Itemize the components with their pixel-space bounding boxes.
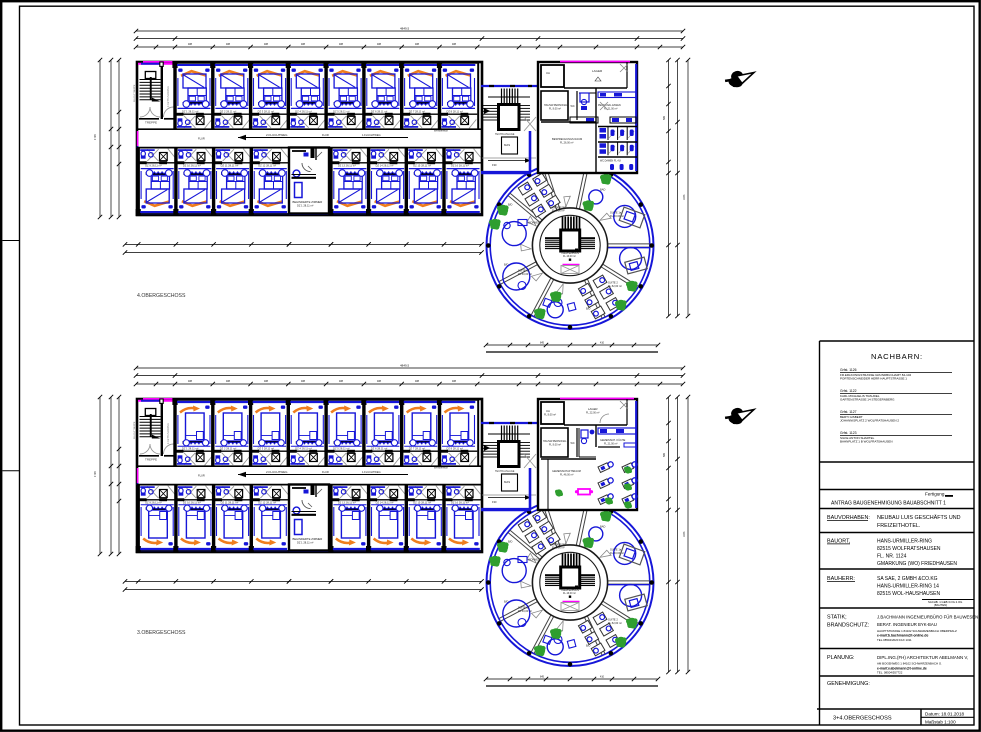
- svg-text:DZ 8 28,11 m²: DZ 8 28,11 m²: [447, 446, 464, 450]
- svg-text:4849.5: 4849.5: [400, 27, 410, 31]
- svg-text:UA: UA: [546, 71, 550, 75]
- svg-text:3.OBERGESCHOSS: 3.OBERGESCHOSS: [137, 630, 186, 636]
- svg-text:FL.8,00 m²: FL.8,00 m²: [552, 209, 565, 213]
- svg-text:488: 488: [264, 43, 269, 46]
- svg-text:DZ 1 28,11 m²: DZ 1 28,11 m²: [182, 446, 199, 450]
- svg-text:FLUCHTTREPPE: FLUCHTTREPPE: [134, 84, 136, 102]
- svg-text:FL.16,00 m²: FL.16,00 m²: [563, 255, 576, 258]
- svg-text:488: 488: [415, 43, 420, 46]
- svg-text:BAD: BAD: [600, 525, 605, 529]
- svg-text:FLUR: FLUR: [198, 137, 205, 141]
- svg-text:SUITE 1a: SUITE 1a: [610, 211, 622, 215]
- svg-text:845: 845: [540, 676, 545, 679]
- svg-text:BAD: BAD: [600, 188, 605, 192]
- svg-text:82515 WOL-HAUSHAUSEN: 82515 WOL-HAUSHAUSEN: [877, 591, 940, 597]
- svg-text:DZ 12 28,11 m²: DZ 12 28,11 m²: [258, 501, 276, 505]
- svg-text:NACHBARN:: NACHBARN:: [871, 352, 923, 361]
- svg-text:WOHNEN: WOHNEN: [528, 558, 540, 562]
- svg-text:488: 488: [377, 43, 382, 46]
- svg-text:DZ 15 28,11 m²: DZ 15 28,11 m²: [413, 501, 431, 505]
- svg-text:1735: 1735: [93, 134, 97, 140]
- svg-text:F30: F30: [492, 500, 497, 504]
- svg-text:HANS-URMILLER-RING: HANS-URMILLER-RING: [877, 539, 932, 545]
- svg-text:FL.52,00 m²: FL.52,00 m²: [608, 284, 622, 288]
- svg-text:82515 WOLFRATSHAUSEN: 82515 WOLFRATSHAUSEN: [877, 546, 941, 552]
- svg-text:845: 845: [540, 342, 545, 345]
- svg-text:Grfst. 1127: Grfst. 1127: [840, 410, 857, 414]
- svg-text:488: 488: [301, 43, 306, 46]
- svg-text:FREIZEITHOTEL.: FREIZEITHOTEL.: [877, 523, 920, 529]
- svg-text:DZ 7 28,11 m²: DZ 7 28,11 m²: [409, 109, 426, 113]
- svg-text:1735: 1735: [93, 471, 97, 477]
- svg-text:488: 488: [226, 380, 231, 383]
- svg-text:4.OBERGESCHOSS: 4.OBERGESCHOSS: [137, 293, 186, 299]
- svg-text:(BAUTEN): (BAUTEN): [934, 603, 947, 607]
- svg-text:B/D: B/D: [508, 203, 512, 207]
- svg-text:UA: UA: [546, 409, 550, 413]
- svg-text:AM BOGENWEG 1 84102 SCHWARZENB: AM BOGENWEG 1 84102 SCHWARZENBACH O.: [877, 662, 942, 666]
- svg-text:DIPL.ING.(FH) ARCHITEKTUR ABEL: DIPL.ING.(FH) ARCHITEKTUR ABELMANN V,: [877, 655, 968, 660]
- svg-text:BEHINDERTE ZIMMER: BEHINDERTE ZIMMER: [293, 537, 323, 541]
- svg-text:488: 488: [301, 380, 306, 383]
- svg-text:DZ 1 28,11 m²: DZ 1 28,11 m²: [182, 109, 199, 113]
- svg-text:FL.22,00 m²: FL.22,00 m²: [586, 412, 600, 415]
- svg-text:DZ 4 28,11 m²: DZ 4 28,11 m²: [295, 109, 312, 113]
- svg-text:DZ 13 28,11 m²: DZ 13 28,11 m²: [338, 501, 356, 505]
- svg-text:1673: 1673: [683, 194, 686, 200]
- svg-text:3+4.OBERGESCHOSS: 3+4.OBERGESCHOSS: [833, 716, 892, 722]
- svg-text:FLUR: FLUR: [322, 470, 329, 474]
- svg-text:2.RETTUNGSWEG: 2.RETTUNGSWEG: [167, 86, 170, 107]
- svg-text:TECHN.ANLAGE: TECHN.ANLAGE: [495, 470, 515, 473]
- svg-text:DZ 6 28,11 m²: DZ 6 28,11 m²: [371, 109, 388, 113]
- svg-text:1673: 1673: [683, 531, 686, 537]
- svg-text:e-mail:b.bachmann@t-online.de: e-mail:b.bachmann@t-online.de: [877, 634, 928, 638]
- svg-text:SUITE 1a: SUITE 1a: [610, 548, 622, 552]
- svg-text:FL.46,00 m²: FL.46,00 m²: [560, 474, 574, 477]
- svg-text:ANTRAG BAUGENEHMIGUNG BAUABSCH: ANTRAG BAUGENEHMIGUNG BAUABSCHNITT 1: [831, 501, 946, 507]
- svg-text:WC: WC: [571, 442, 575, 445]
- svg-text:WC: WC: [571, 105, 575, 108]
- svg-text:DZ 2 28,11 m²: DZ 2 28,11 m²: [220, 109, 237, 113]
- svg-text:GARTENSTRASSE 14 STEGERNBERG: GARTENSTRASSE 14 STEGERNBERG: [840, 398, 895, 402]
- svg-text:WC DAMEN FL.4,8: WC DAMEN FL.4,8: [600, 160, 621, 163]
- svg-text:585: 585: [663, 452, 666, 457]
- svg-text:Datum: 18.01.2018: Datum: 18.01.2018: [925, 712, 965, 717]
- svg-text:488: 488: [264, 380, 269, 383]
- svg-text:488: 488: [452, 380, 457, 383]
- svg-text:B/D: B/D: [504, 600, 508, 604]
- svg-text:DZ 13 28,11 m²: DZ 13 28,11 m²: [338, 164, 356, 168]
- svg-text:FL.50,00 m²: FL.50,00 m²: [610, 214, 624, 218]
- svg-text:Fertigung: Fertigung: [925, 492, 945, 497]
- svg-text:DZ 7 28,11 m²: DZ 7 28,11 m²: [409, 446, 426, 450]
- svg-text:WOHNEN: WOHNEN: [528, 221, 540, 225]
- svg-text:DZ 8 28,11 m²: DZ 8 28,11 m²: [447, 109, 464, 113]
- svg-text:BESPRECHUNGS RAUM: BESPRECHUNGS RAUM: [552, 137, 582, 141]
- svg-text:SUITE 1b: SUITE 1b: [518, 269, 530, 273]
- svg-text:DZ 14 28,11 m²: DZ 14 28,11 m²: [376, 164, 394, 168]
- svg-text:TECHN.ANLAGE: TECHN.ANLAGE: [495, 133, 515, 136]
- svg-text:2.RETTUNGSWEG: 2.RETTUNGSWEG: [167, 423, 170, 444]
- svg-text:410: 410: [600, 342, 605, 345]
- svg-text:DZ 2 28,11 m²: DZ 2 28,11 m²: [220, 446, 237, 450]
- svg-text:DZ 15 28,11 m²: DZ 15 28,11 m²: [413, 164, 431, 168]
- svg-text:DZ 5 28,11 m²: DZ 5 28,11 m²: [333, 446, 350, 450]
- svg-text:FLUCHTTREPPE: FLUCHTTREPPE: [134, 421, 136, 439]
- svg-text:TREPPE: TREPPE: [145, 458, 157, 462]
- svg-text:Grfst. 1126: Grfst. 1126: [840, 368, 857, 372]
- svg-text:DZ 16 28,11 m²: DZ 16 28,11 m²: [451, 501, 469, 505]
- svg-text:FL.50,00 m²: FL.50,00 m²: [610, 551, 624, 555]
- svg-text:PLANUNG:: PLANUNG:: [827, 655, 855, 661]
- svg-text:FL.8,00 m²: FL.8,00 m²: [552, 546, 565, 550]
- svg-text:MAS: MAS: [504, 480, 510, 484]
- svg-text:410: 410: [600, 676, 605, 679]
- svg-text:SUITE 1b: SUITE 1b: [518, 606, 530, 610]
- svg-text:4849.5: 4849.5: [400, 364, 410, 368]
- svg-text:Grfst. 1123: Grfst. 1123: [840, 431, 857, 435]
- svg-text:SA SAE, 2 GMBH &CO.KG: SA SAE, 2 GMBH &CO.KG: [877, 576, 938, 582]
- svg-text:FL.9,00 m²: FL.9,00 m²: [549, 108, 561, 111]
- svg-text:DZ 16 28,11 m²: DZ 16 28,11 m²: [451, 164, 469, 168]
- svg-text:DZ 12 28,11 m²: DZ 12 28,11 m²: [258, 164, 276, 168]
- svg-text:585: 585: [663, 115, 666, 120]
- svg-text:MAS: MAS: [504, 143, 510, 147]
- svg-text:488: 488: [339, 380, 344, 383]
- svg-text:DZ 1 28,11 m²: DZ 1 28,11 m²: [297, 541, 314, 545]
- svg-text:TREPPE: TREPPE: [145, 121, 157, 125]
- svg-text:HAUPTSTRASSE 1 84102 SCHWARZEN: HAUPTSTRASSE 1 84102 SCHWARZENBACH OBERP…: [877, 629, 957, 633]
- svg-text:488: 488: [188, 380, 193, 383]
- svg-text:FL.26,00 m²: FL.26,00 m²: [560, 142, 574, 145]
- svg-text:BAHNPLATZ 1 B WOLFRATSHAUSEN: BAHNPLATZ 1 B WOLFRATSHAUSEN: [840, 440, 893, 444]
- svg-text:2.FLUCHTWEG: 2.FLUCHTWEG: [266, 133, 288, 137]
- svg-text:BEHINDERTE ZIMMER: BEHINDERTE ZIMMER: [293, 200, 323, 204]
- svg-text:B/D: B/D: [586, 644, 590, 648]
- svg-text:FL.50,00 m²: FL.50,00 m²: [518, 609, 532, 613]
- svg-text:B/D: B/D: [586, 307, 590, 311]
- svg-text:DZ 3 28,11 m²: DZ 3 28,11 m²: [258, 109, 275, 113]
- svg-text:LAGER: LAGER: [588, 407, 597, 411]
- svg-text:JOHANNISPLATZ 2 WOLFRATSHAUSEN: JOHANNISPLATZ 2 WOLFRATSHAUSEN 2: [840, 419, 899, 423]
- svg-text:FL.9,00 m²: FL.9,00 m²: [544, 414, 556, 417]
- svg-text:BRANDSCHUTZ:: BRANDSCHUTZ:: [827, 623, 869, 629]
- svg-text:2.FLUCHTWEG: 2.FLUCHTWEG: [266, 470, 288, 474]
- svg-text:Grfst. 1122: Grfst. 1122: [840, 389, 857, 393]
- svg-text:F30: F30: [492, 163, 497, 167]
- svg-text:488: 488: [226, 43, 231, 46]
- svg-text:BERAT. INGENIEUR BYK-BAU: BERAT. INGENIEUR BYK-BAU: [877, 622, 937, 627]
- svg-text:DZ 4 28,11 m²: DZ 4 28,11 m²: [295, 446, 312, 450]
- svg-text:SUITE 2: SUITE 2: [608, 618, 618, 622]
- svg-text:488: 488: [339, 43, 344, 46]
- svg-text:STATIK;: STATIK;: [827, 615, 847, 621]
- svg-text:TEL.08504/2020 FAX 1311: TEL.08504/2020 FAX 1311: [877, 638, 912, 642]
- svg-text:FL.21,00 m²: FL.21,00 m²: [604, 443, 618, 446]
- svg-text:FLUR: FLUR: [198, 474, 205, 478]
- svg-text:B/D: B/D: [508, 540, 512, 544]
- svg-text:FLUR: FLUR: [322, 133, 329, 137]
- svg-text:488: 488: [377, 380, 382, 383]
- svg-text:FL.50,00 m²: FL.50,00 m²: [518, 272, 532, 276]
- svg-text:DZ 1 28,11 m²: DZ 1 28,11 m²: [297, 204, 314, 208]
- svg-text:J.BACHMANN INGENIEURBÜRO FÜR B: J.BACHMANN INGENIEURBÜRO FÜR BAUWESEN: [877, 615, 978, 620]
- svg-text:DZ 6 28,11 m²: DZ 6 28,11 m²: [371, 446, 388, 450]
- svg-text:SUITE 2: SUITE 2: [608, 281, 618, 285]
- svg-text:DZ 14 28,11 m²: DZ 14 28,11 m²: [376, 501, 394, 505]
- svg-text:DZ 5 28,11 m²: DZ 5 28,11 m²: [333, 109, 350, 113]
- svg-text:DZ 11 28,11 m²: DZ 11 28,11 m²: [221, 164, 239, 168]
- svg-text:FL. NR. 1124: FL. NR. 1124: [877, 554, 907, 560]
- svg-text:DZ 3 28,11 m²: DZ 3 28,11 m²: [258, 446, 275, 450]
- svg-text:DZ 10 28,11 m²: DZ 10 28,11 m²: [183, 501, 201, 505]
- svg-text:DZ 9 28,11 m²: DZ 9 28,11 m²: [145, 501, 162, 505]
- svg-text:B/D: B/D: [504, 263, 508, 267]
- svg-text:488: 488: [452, 43, 457, 46]
- svg-text:LAGER: LAGER: [592, 69, 603, 73]
- svg-text:DZ 10 28,11 m²: DZ 10 28,11 m²: [183, 164, 201, 168]
- svg-text:488: 488: [415, 380, 420, 383]
- svg-text:FL.9,00 m²: FL.9,00 m²: [549, 444, 561, 447]
- svg-text:PORTENSCHNEIDER HERR HAUPTSTRA: PORTENSCHNEIDER HERR HAUPTSTRASSE 1: [840, 377, 907, 381]
- svg-text:GENEHMIGUNG:: GENEHMIGUNG:: [827, 681, 870, 687]
- svg-text:FL.16,00 m²: FL.16,00 m²: [563, 592, 576, 595]
- svg-text:HANS-URMILLER-RING 14: HANS-URMILLER-RING 14: [877, 584, 939, 590]
- svg-text:NEUBAU LUIS GESCHÄFTS UND: NEUBAU LUIS GESCHÄFTS UND: [877, 514, 961, 521]
- svg-text:1.FLUCHTWEG: 1.FLUCHTWEG: [362, 470, 381, 474]
- svg-text:1.FLUCHTWEG: 1.FLUCHTWEG: [362, 133, 381, 137]
- svg-text:TEL. 08504/557722: TEL. 08504/557722: [877, 671, 903, 675]
- svg-text:488: 488: [188, 43, 193, 46]
- svg-text:GMARKUNG (WO) FRIEDHAUSEN: GMARKUNG (WO) FRIEDHAUSEN: [877, 561, 957, 567]
- svg-text:DZ 9 28,11 m²: DZ 9 28,11 m²: [145, 164, 162, 168]
- svg-text:FL.52,00 m²: FL.52,00 m²: [608, 621, 622, 625]
- svg-text:Maßstab 1:100: Maßstab 1:100: [925, 720, 956, 725]
- svg-text:DZ 11 28,11 m²: DZ 11 28,11 m²: [221, 501, 239, 505]
